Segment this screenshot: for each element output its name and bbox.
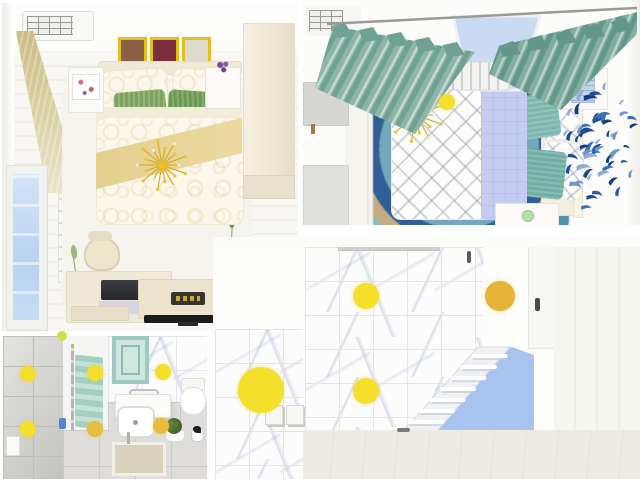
green-cup (522, 210, 534, 222)
chandelier-bead (173, 142, 176, 145)
bird-decal (608, 177, 620, 186)
sink-vanity (115, 392, 171, 436)
window-glass (13, 174, 39, 320)
chandelier-bead (152, 178, 155, 181)
bird-decal (588, 89, 602, 102)
nightstand-left (68, 67, 104, 113)
chandelier-bead (141, 147, 144, 150)
chair-seat (84, 237, 120, 271)
bath-gray-wall (3, 336, 63, 479)
open-book (72, 74, 100, 100)
bird-decal (580, 203, 592, 213)
bird-decal (613, 186, 625, 198)
moss-plant (165, 420, 185, 440)
purple-flowers (216, 60, 230, 74)
wall-switch (6, 436, 20, 456)
floor-threshold-mark (397, 428, 410, 432)
penguin-figure (191, 426, 204, 442)
chandelier-bead (163, 147, 166, 150)
hall-marble-left (215, 329, 303, 479)
chandelier-bead (152, 149, 155, 152)
basin-drain (133, 420, 138, 425)
nightstand-right (205, 67, 241, 109)
chandelier-bead (173, 152, 176, 155)
chandelier-bead (144, 158, 147, 161)
ac-vent (77, 17, 89, 34)
teal-towel (75, 355, 103, 430)
bird-decal (594, 139, 602, 145)
logo-plate (171, 292, 205, 305)
bird-decal (626, 169, 636, 179)
toilet (179, 378, 205, 414)
wardrobe (243, 23, 295, 177)
sky-streaks (13, 174, 39, 320)
bird-decal (563, 163, 576, 175)
bedroom2-bottom-wall (303, 225, 640, 233)
door-frame-mark (467, 251, 471, 263)
penguin-head (193, 426, 201, 433)
bird-decal (575, 161, 592, 175)
chair-back (88, 231, 112, 241)
chandelier-bead (136, 163, 139, 166)
curtain-left (315, 23, 475, 134)
wardrobe-base (243, 175, 295, 199)
chandelier-bead (173, 185, 176, 188)
room-bedroom-2 (303, 0, 640, 233)
bird-decal (623, 143, 631, 151)
tv-stand (178, 322, 198, 326)
blue-bottle (59, 418, 66, 429)
bird-decal (558, 152, 566, 158)
chandelier-bead (184, 172, 187, 175)
door-handle (535, 298, 540, 311)
chandelier-bead (141, 179, 144, 182)
room-stair-hall (213, 237, 640, 479)
logo-glyph (176, 296, 200, 301)
bird-decal (607, 148, 622, 160)
chandelier-bead (184, 155, 187, 158)
bird-decal (567, 178, 582, 193)
bird-decal (600, 81, 610, 91)
chandelier-bead (156, 188, 159, 191)
chandelier-bead (177, 163, 180, 166)
floor-mat (112, 442, 166, 476)
ac-grille (27, 16, 73, 35)
bedroom1-window (6, 165, 48, 331)
room-bathroom (3, 336, 207, 479)
wash-basin (117, 406, 155, 438)
moss-ball (166, 418, 182, 434)
bird-decal (629, 123, 638, 130)
bird-decal (620, 158, 628, 165)
small-tile (286, 405, 304, 425)
hall-panel-wall (554, 240, 640, 432)
chandelier-bead (144, 169, 147, 172)
gray-cabinet-bottom (303, 165, 349, 233)
mirror-inner-frame (121, 345, 140, 375)
hall-floor (303, 430, 640, 479)
faucet (127, 432, 130, 444)
bird-decal (618, 99, 625, 105)
teal-mirror (112, 336, 149, 384)
toilet-bowl (180, 387, 206, 415)
bird-decal (565, 107, 576, 117)
bird-decal (626, 113, 638, 125)
chartreuse-ball (57, 331, 67, 341)
bird-wall-decor (540, 58, 640, 216)
desk-drawer (71, 306, 129, 321)
small-tile (265, 405, 283, 425)
chandelier-bead (173, 174, 176, 177)
bird-decal (590, 188, 603, 201)
white-door (528, 237, 556, 349)
bird-decal (566, 151, 578, 164)
desk-chair (80, 231, 120, 269)
chandelier-bead (163, 180, 166, 183)
bird-decal (571, 102, 585, 116)
gold-chandelier (134, 137, 190, 193)
chandelier-bead (156, 139, 159, 142)
apartment-render (0, 0, 640, 480)
chandelier-center (158, 161, 166, 169)
hall-top-wall (213, 237, 640, 247)
